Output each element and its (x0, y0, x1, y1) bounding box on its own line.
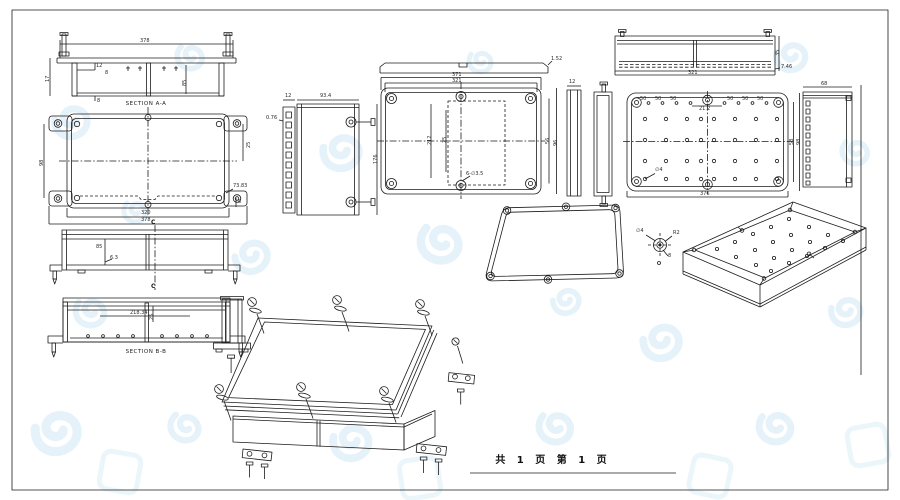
dim-label: 50 (655, 97, 661, 102)
section-label: SECTION A-A (111, 102, 181, 108)
dim-label: 378 (140, 39, 150, 44)
dim-label: 58 (790, 139, 795, 145)
dim-label: 50 (742, 97, 748, 102)
dim-label: 85 (96, 245, 102, 250)
dim-label: 35 (776, 50, 781, 56)
dim-label: 320 (141, 211, 151, 216)
dim-label: 98 (40, 160, 45, 166)
dim-label: 98 (797, 139, 802, 145)
dim-label: 50 (640, 97, 646, 102)
cut-marker: C (151, 220, 155, 226)
dim-label: 73.83 (233, 184, 247, 189)
dim-label: R2 (673, 231, 680, 236)
dim-label: 25 (443, 137, 448, 143)
dim-label: 50 (757, 97, 763, 102)
dim-label: 21.2 (699, 107, 710, 112)
dim-label: 50 (727, 97, 733, 102)
dim-label: 68 (821, 82, 827, 87)
dim-label: 218.34 (130, 311, 148, 316)
dim-label: 371 (452, 73, 462, 78)
section-label: SECTION B-B (111, 350, 181, 356)
dim-label: 321 (452, 79, 462, 84)
dim-label: 8 (668, 254, 671, 259)
dim-label: 378 (141, 218, 151, 223)
cut-marker: C (151, 284, 155, 290)
dim-label: 7.46 (781, 65, 792, 70)
dim-label: ∅4 (655, 168, 663, 173)
dim-label: 12 (569, 80, 575, 85)
dim-label: ∅4 (636, 229, 644, 234)
label-layer: 378 17 85 12 8 8 SECTION A-A 98 25 73.83… (0, 0, 900, 500)
dim-label: 8 (238, 200, 241, 205)
page-count-text: 共 1 页 第 1 页 (478, 456, 628, 466)
dim-label: 176 (374, 154, 379, 164)
dim-label: 8 (105, 71, 108, 76)
dim-label: 376 (700, 192, 710, 197)
dim-label: 85 (183, 80, 188, 86)
dim-label: 1.52 (551, 57, 562, 62)
dim-label: 56 (546, 138, 551, 144)
dim-label: 8 (97, 99, 100, 104)
dim-label: 96 (554, 140, 559, 146)
dim-label: 6-∅3.5 (466, 172, 483, 177)
dim-label: 0.76 (266, 116, 277, 121)
drawing-sheet: 378 17 85 12 8 8 SECTION A-A 98 25 73.83… (0, 0, 900, 500)
dim-label: 93.4 (320, 94, 331, 99)
dim-label: 25 (150, 314, 155, 320)
dim-label: 212 (428, 135, 433, 145)
dim-label: 321 (688, 71, 698, 76)
dim-label: 12 (96, 64, 102, 69)
dim-label: 6.3 (110, 256, 118, 261)
dim-label: 50 (670, 97, 676, 102)
dim-label: 12 (285, 94, 291, 99)
dim-label: 17 (46, 76, 51, 82)
dim-label: 25 (247, 142, 252, 148)
